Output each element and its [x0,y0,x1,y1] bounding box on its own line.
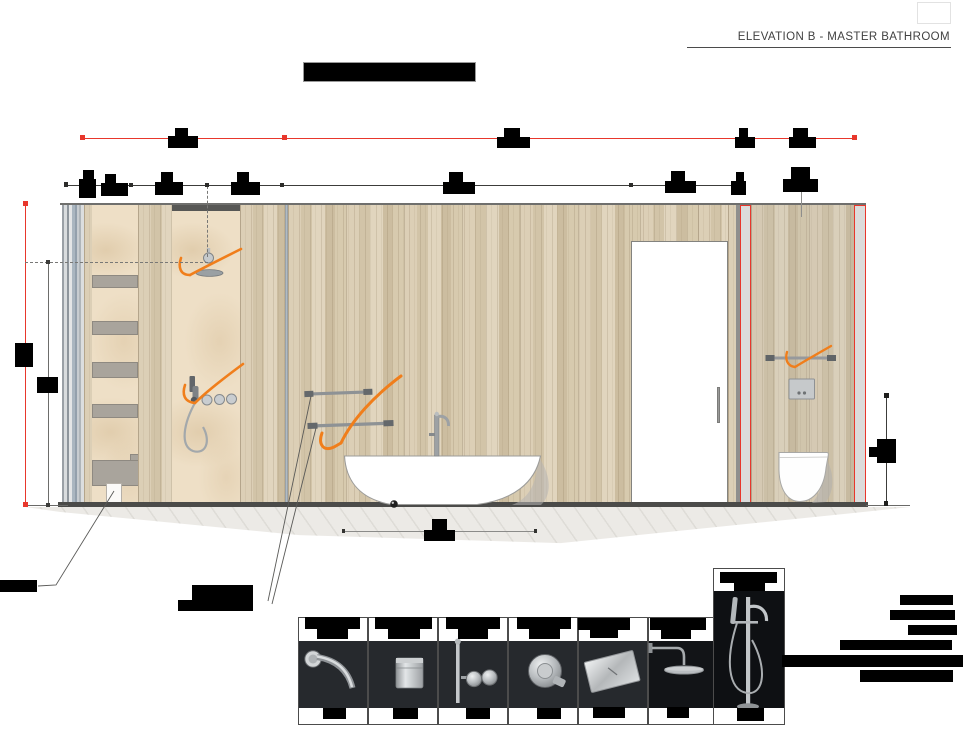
dimension-tick [129,183,133,187]
redacted-label [83,170,94,180]
redacted-label [900,595,953,605]
redacted-label [101,183,128,196]
redacted-label [432,519,447,531]
redacted-label [237,172,249,182]
redacted-label [590,630,618,639]
redacted-label [737,708,764,721]
redacted-label [192,585,253,600]
redacted-label [731,181,747,195]
redacted-label [736,172,744,182]
dashed-height-line [25,262,208,263]
dimension-overlay [0,0,964,753]
redacted-label [388,629,420,639]
redacted-label [424,530,455,541]
dimension-tick [46,260,50,264]
redacted-label [908,625,957,635]
dimension-tick [852,135,857,140]
redacted-label [497,137,530,149]
dimension-tick [280,183,284,187]
dimension-tick [282,135,287,140]
redacted-label [393,708,418,719]
redacted-label [860,670,953,683]
redacted-label [890,610,955,620]
redacted-label [537,708,561,719]
redacted-label [105,174,116,184]
redacted-label [0,580,37,592]
redacted-label [782,655,963,668]
redacted-label [517,617,571,629]
redacted-label [671,171,685,182]
redacted-label [323,708,346,719]
dimension-tick [23,502,28,507]
flushplate-leader [801,190,802,217]
elevation-sheet: ELEVATION B - MASTER BATHROOM [0,0,964,753]
dimension-tick [342,529,346,533]
redacted-label [446,617,500,629]
redacted-label [79,179,96,198]
redacted-label [443,182,475,194]
redacted-label [783,179,818,192]
dashed-vertical-axis [207,186,208,257]
redacted-label [593,707,625,718]
dimension-tick [884,393,889,398]
redacted-label [578,618,630,630]
redacted-label [720,572,777,584]
dimension-tick [205,183,209,187]
redacted-label [791,167,810,180]
redacted-label [739,128,748,137]
dimension-tick [534,529,538,533]
redacted-label [303,62,476,82]
dimension-tick [80,135,85,140]
redacted-label [375,617,432,629]
redacted-label [789,137,816,148]
redacted-label [840,640,952,650]
redacted-label [155,182,183,195]
dimension-tick [884,501,889,506]
redacted-label [15,343,33,367]
redacted-label [793,128,808,137]
redacted-label [734,583,765,591]
redacted-label [178,600,253,611]
redacted-label [458,629,488,639]
redacted-label [317,629,348,639]
redacted-label [529,629,560,639]
redacted-label [168,136,198,149]
dimension-tick [46,503,50,507]
redacted-label [305,617,360,629]
redacted-label [449,172,463,183]
redacted-label [161,172,173,182]
redacted-label [661,630,691,639]
redacted-label [466,708,490,719]
dimension-tick [629,183,633,187]
redacted-label [650,618,706,630]
redacted-label [231,182,260,195]
redacted-label [735,137,755,148]
redacted-label [877,439,896,463]
redacted-label [665,181,696,193]
redacted-label [37,377,58,393]
dimension-tick [64,182,69,187]
redacted-label [667,707,689,718]
dimension-tick [23,201,28,206]
